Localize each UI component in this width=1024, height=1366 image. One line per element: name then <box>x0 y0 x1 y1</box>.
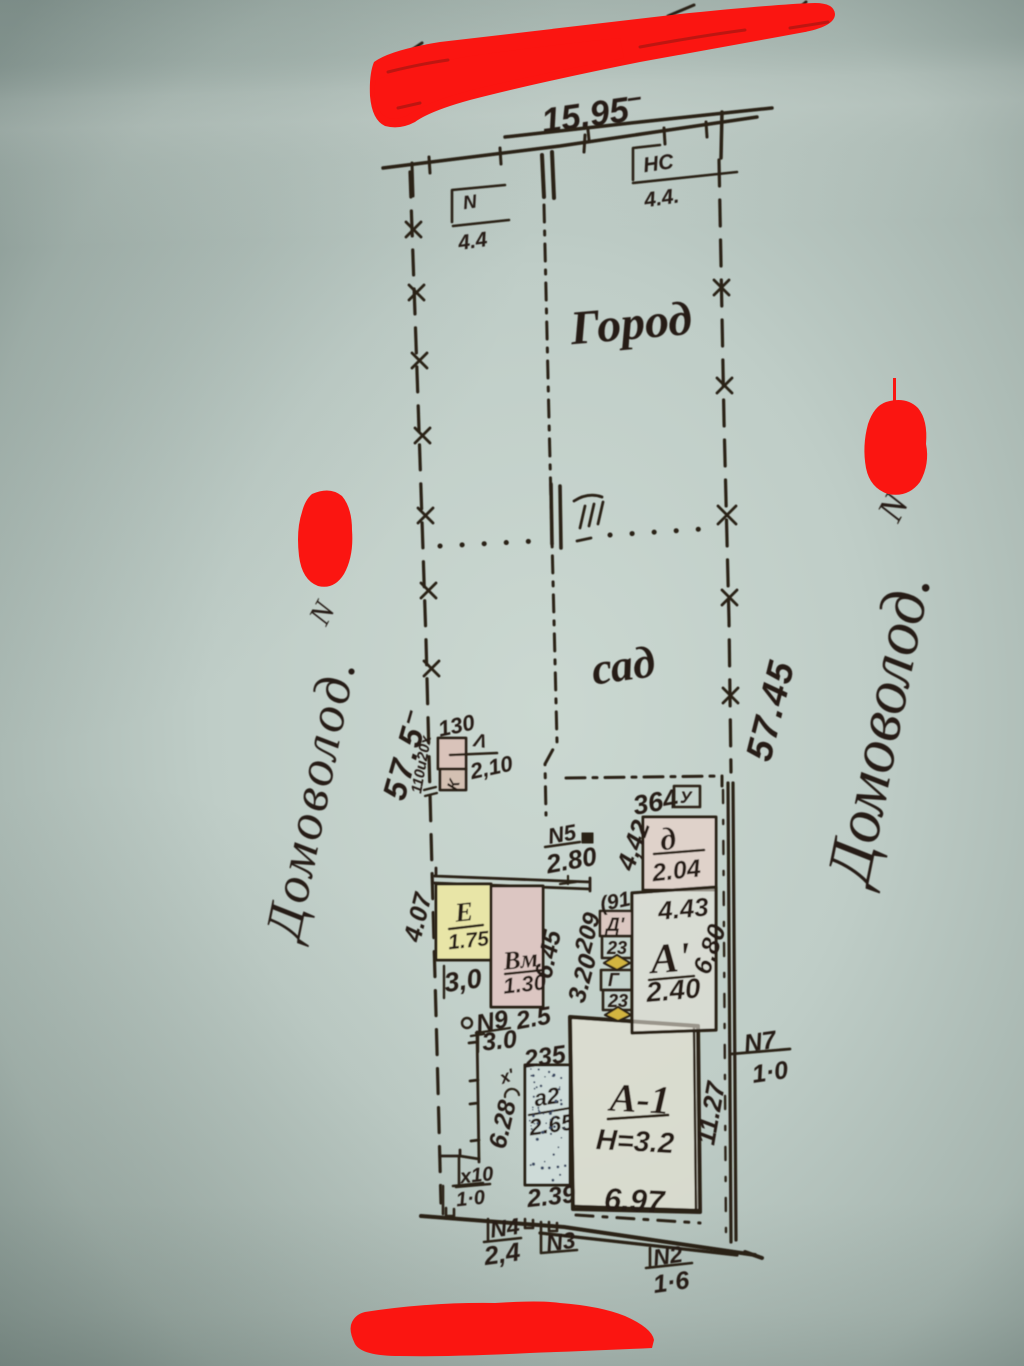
svg-text:1.75: 1.75 <box>447 927 490 954</box>
svg-text:4.43: 4.43 <box>656 892 711 926</box>
svg-text:3,0: 3,0 <box>442 963 483 998</box>
svg-text:4.4: 4.4 <box>456 228 489 255</box>
svg-text:Н=3.2: Н=3.2 <box>595 1124 675 1160</box>
svg-text:2,4: 2,4 <box>481 1236 522 1271</box>
svg-text:1·0: 1·0 <box>455 1186 486 1211</box>
svg-text:Город: Город <box>567 292 694 355</box>
svg-text:N2: N2 <box>651 1241 684 1271</box>
svg-text:Д': Д' <box>604 915 626 936</box>
svg-text:3.0: 3.0 <box>481 1025 519 1056</box>
svg-text:1·6: 1·6 <box>651 1266 692 1299</box>
svg-text:6.97: 6.97 <box>603 1181 667 1219</box>
svg-text:2.40: 2.40 <box>644 972 702 1008</box>
svg-text:Е: Е <box>452 896 474 928</box>
svg-text:НС: НС <box>642 150 676 177</box>
svg-text:1·0: 1·0 <box>750 1056 790 1089</box>
svg-text:У: У <box>680 788 693 807</box>
svg-text:N7: N7 <box>742 1026 779 1058</box>
svg-text:2.04: 2.04 <box>650 854 702 887</box>
svg-text:Г: Г <box>608 970 620 990</box>
svg-text:N3: N3 <box>544 1227 577 1257</box>
svg-text:Λ: Λ <box>471 730 487 753</box>
svg-text:2.39: 2.39 <box>525 1180 577 1213</box>
svg-text:сад: сад <box>588 636 658 694</box>
